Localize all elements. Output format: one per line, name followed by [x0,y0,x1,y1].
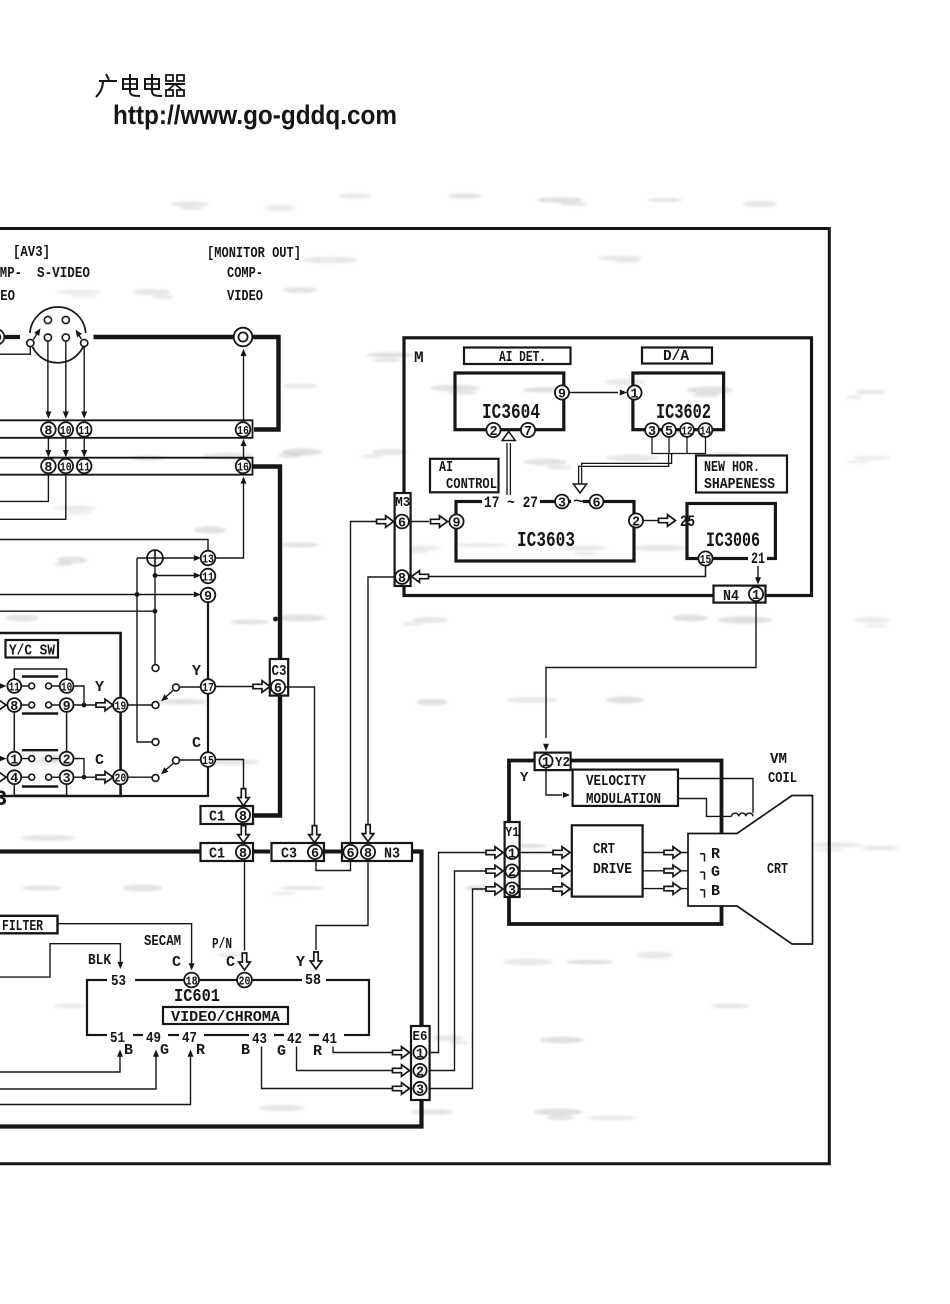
svg-text:8: 8 [239,847,247,862]
svg-text:VIDEO: VIDEO [227,288,263,305]
svg-text:SECAM: SECAM [144,933,181,950]
svg-text:6: 6 [346,847,354,862]
svg-text:COMP-: COMP- [227,265,263,282]
svg-text:C: C [172,954,181,971]
svg-text:1: 1 [10,753,18,768]
svg-text:3: 3 [416,1083,424,1098]
svg-text:11: 11 [9,680,20,694]
svg-text:58: 58 [305,972,321,989]
svg-text:CRT: CRT [767,861,788,878]
svg-text:7: 7 [524,425,532,440]
svg-text:N4: N4 [723,588,739,605]
svg-text:16: 16 [237,460,249,474]
svg-text:IC3602: IC3602 [656,402,711,425]
svg-text:R: R [711,846,720,863]
svg-text:E6: E6 [413,1029,428,1045]
svg-text:M3: M3 [395,495,410,511]
svg-text:17 ~ 27: 17 ~ 27 [484,494,538,512]
svg-text:CRT: CRT [593,841,615,858]
svg-text:8: 8 [364,847,372,862]
svg-text:11: 11 [202,570,214,584]
svg-text:42: 42 [287,1031,302,1048]
svg-text:9: 9 [558,387,566,402]
svg-text:BLK: BLK [88,952,111,969]
svg-text:C: C [192,735,201,752]
svg-text:C1: C1 [209,846,225,863]
svg-text:11: 11 [78,460,90,474]
svg-text:6: 6 [398,516,406,531]
svg-text:1: 1 [752,589,760,604]
svg-text:M: M [414,349,424,367]
svg-text:IC3604: IC3604 [482,402,540,425]
svg-text:IC3603: IC3603 [517,530,575,553]
svg-text:Y: Y [95,679,104,696]
svg-text:P/N: P/N [212,936,232,953]
svg-text:3: 3 [0,787,7,812]
svg-text:Y1: Y1 [505,826,519,841]
svg-text:CONTROL: CONTROL [446,476,497,493]
svg-text:43: 43 [252,1031,267,1048]
svg-text:AI: AI [439,459,453,476]
svg-text:VELOCITY: VELOCITY [586,773,646,790]
svg-text:2: 2 [508,866,516,881]
svg-text:20: 20 [239,974,251,988]
svg-text:6: 6 [274,682,282,697]
svg-text:14: 14 [700,424,711,438]
svg-text:Y/C SW: Y/C SW [9,643,55,660]
svg-text:2: 2 [632,515,640,530]
svg-text:Y2: Y2 [555,755,570,771]
svg-text:2: 2 [63,753,71,768]
svg-text:C1: C1 [209,809,225,826]
svg-text:53: 53 [111,973,126,990]
svg-text:10: 10 [61,680,72,694]
svg-text:8: 8 [10,700,18,715]
svg-text:6: 6 [311,847,319,862]
svg-text:16: 16 [237,424,249,438]
svg-text:1: 1 [508,847,516,862]
svg-text:IC601: IC601 [174,987,220,1007]
svg-text:C3: C3 [281,846,297,863]
svg-text:C: C [226,954,235,971]
svg-text:4: 4 [10,772,18,787]
svg-text:~: ~ [573,494,585,511]
svg-text:9: 9 [63,700,71,715]
svg-text:N3: N3 [384,846,400,863]
svg-text:http://www.go-gddq.com: http://www.go-gddq.com [113,100,397,130]
svg-text:[AV3]: [AV3] [13,244,50,261]
svg-text:49: 49 [146,1030,161,1047]
svg-text:G: G [277,1043,286,1060]
svg-text:COIL: COIL [768,770,797,787]
svg-text:G: G [160,1042,169,1059]
svg-text:20: 20 [115,772,127,786]
svg-text:S-VIDEO: S-VIDEO [37,265,90,282]
svg-text:R: R [313,1043,322,1060]
svg-text:2: 2 [416,1065,424,1080]
svg-text:FILTER: FILTER [2,918,43,935]
svg-text:G: G [711,864,720,881]
svg-text:21: 21 [751,550,765,568]
svg-text:DRIVE: DRIVE [593,861,632,878]
svg-text:51: 51 [110,1030,125,1047]
svg-text:C: C [95,752,104,769]
svg-text:COMP-: COMP- [0,265,22,282]
svg-text:Y: Y [192,663,201,680]
svg-text:VM: VM [770,751,787,768]
svg-text:6: 6 [592,496,600,511]
svg-text:15: 15 [202,754,214,768]
svg-text:41: 41 [322,1031,337,1048]
svg-text:3: 3 [558,496,566,511]
svg-text:19: 19 [115,699,127,713]
svg-text:3: 3 [508,884,516,899]
svg-text:SHAPENESS: SHAPENESS [704,476,775,493]
svg-text:8: 8 [398,572,406,587]
svg-text:15: 15 [700,553,712,567]
svg-text:D/A: D/A [663,348,689,365]
svg-text:3: 3 [63,772,71,787]
svg-text:B: B [241,1042,250,1059]
svg-text:[MONITOR OUT]: [MONITOR OUT] [207,245,301,262]
svg-text:17: 17 [202,681,214,695]
svg-text:47: 47 [182,1030,197,1047]
svg-text:NEW HOR.: NEW HOR. [704,459,760,476]
svg-text:10: 10 [60,460,72,474]
svg-text:8: 8 [239,810,247,825]
svg-text:11: 11 [78,424,90,438]
svg-text:VIDEO: VIDEO [0,288,15,305]
svg-text:8: 8 [44,424,52,439]
svg-text:1: 1 [630,387,638,402]
svg-text:R: R [196,1042,205,1059]
svg-text:AI DET.: AI DET. [499,349,546,366]
svg-text:VIDEO/CHROMA: VIDEO/CHROMA [171,1009,280,1026]
svg-text:Y: Y [296,954,305,971]
svg-text:C3: C3 [272,663,287,680]
svg-text:9: 9 [452,516,460,531]
svg-text:MODULATION: MODULATION [586,791,661,808]
svg-text:13: 13 [202,552,214,566]
svg-text:B: B [124,1042,133,1059]
svg-text:1: 1 [416,1047,424,1062]
svg-text:2: 2 [489,425,497,440]
svg-text:12: 12 [681,424,692,438]
svg-text:B: B [711,883,720,900]
svg-text:10: 10 [60,424,72,438]
svg-text:Y: Y [520,770,529,786]
